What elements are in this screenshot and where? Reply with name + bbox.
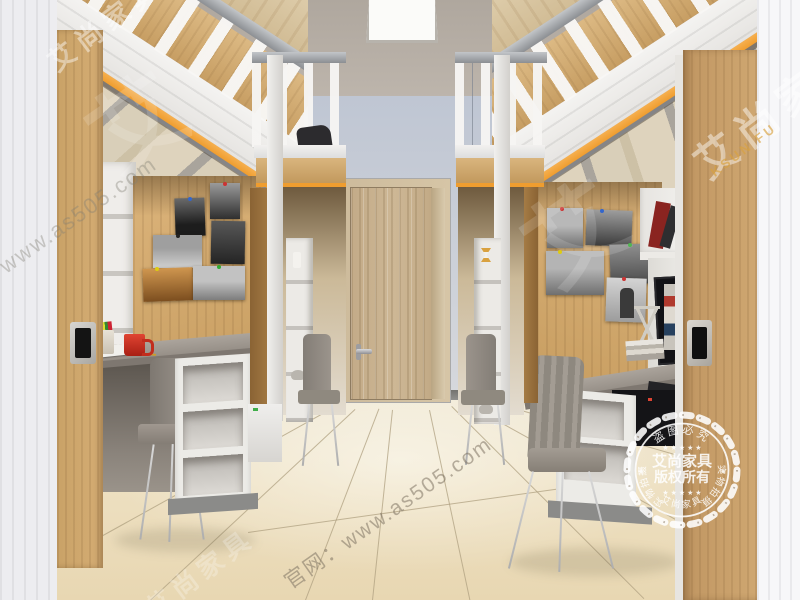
wardrobe-handle-recess [75,328,91,358]
floor-shadow [115,528,255,552]
stamp-stars-top: ★ ★ ★ ★ ★ [662,444,701,452]
left-white-column [0,0,57,600]
left-open-shelf [175,353,251,506]
push-pin [217,265,221,269]
wardrobe-handle-recess [692,327,707,359]
door-jamb [431,188,445,399]
stamp-star-left: ★ [637,467,644,476]
shelf-cubby [183,454,243,496]
pinned-photo [153,235,202,268]
push-pin [155,267,159,271]
copyright-stamp: 盗图必究 实物拍摄 实物拍摄 艾尚家具 ★ ★ ★ ★ ★ 艾尚家具 版权所有 … [612,400,752,540]
shelf-cubby [183,408,243,450]
push-pin [188,197,192,201]
kettle [479,404,493,414]
shelf-cubby [183,362,243,404]
pinned-photo [193,266,245,300]
push-pin [176,234,180,238]
pinned-photo [585,209,632,247]
mid-left-chair-seat [298,390,340,404]
push-pin [628,243,632,247]
room-door [351,188,431,399]
push-pin [600,209,604,213]
book-stack [625,339,664,362]
stamp-star-right: ★ [719,467,726,476]
stamp-stars-bottom: ★ ★ ★ ★ ★ [662,489,701,497]
right-chair-seat [528,448,606,472]
right-white-column [757,0,800,600]
pinned-photo [546,251,604,295]
pinned-photo [211,221,246,265]
photo-figure [620,288,634,318]
push-pin [622,277,626,281]
power-indicator [253,408,258,411]
stamp-top-arc-text: 盗图必究 [651,423,714,446]
dorm-room-photo: 艾尚家具 艾尚家具 KSUN FU 艾 艾 官网：www.as505.com 官… [0,0,800,600]
push-pin [558,250,562,254]
bed-post [267,55,283,421]
pinned-photo [210,183,240,219]
bottle [293,252,301,268]
push-pin [223,182,227,186]
stamp-brand: 艾尚家具 [652,452,712,470]
mid-right-side-panel [522,185,538,403]
ceiling-light [366,0,438,43]
left-wardrobe-door [57,30,103,568]
mid-right-chair-backrest [466,334,496,396]
pinned-photo [547,208,583,248]
floor-shadow [510,548,680,576]
red-mug-handle [142,339,154,356]
mid-left-chair-backrest [303,334,331,396]
pinned-photo-sepia-tram [142,267,193,302]
stamp-rights: 版权所有 [654,469,710,485]
push-pin [560,207,564,211]
door-handle-lever [356,349,372,354]
low-cabinet [248,404,282,462]
mid-right-chair-seat [461,390,505,405]
pinned-photo [174,197,205,236]
